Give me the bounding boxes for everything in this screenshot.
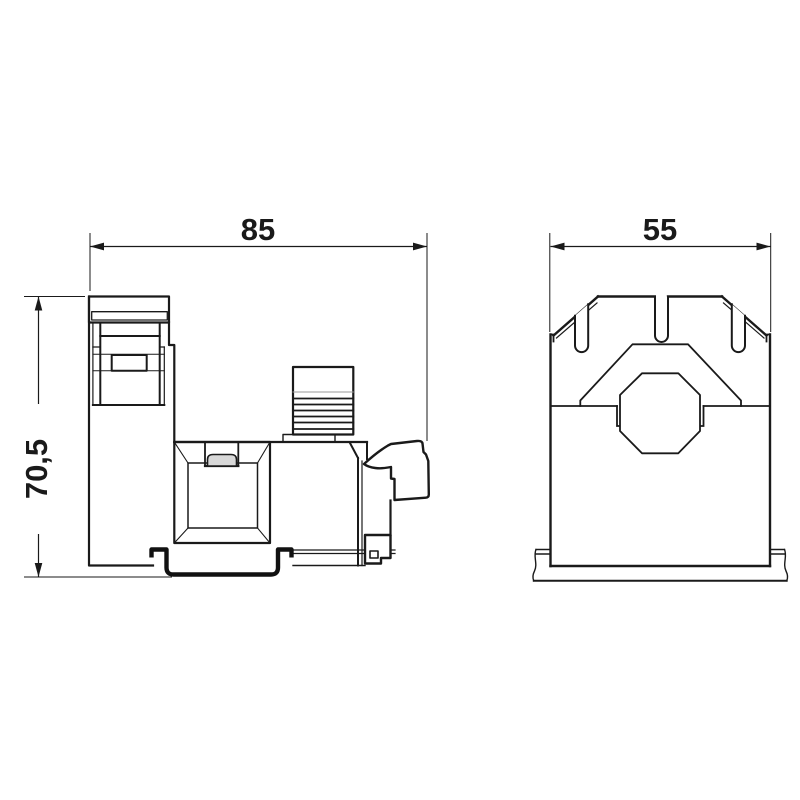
technical-drawing-canvas: 85 70,5 55 xyxy=(0,0,800,800)
arrowhead-right-icon xyxy=(413,243,427,251)
busbar-funnel xyxy=(174,442,270,543)
rail-break-right xyxy=(785,550,788,581)
test-disconnect-slot xyxy=(112,355,147,371)
arrowhead-right-icon xyxy=(757,243,771,251)
dimension-side-height: 70,5 xyxy=(19,297,172,578)
slot-left xyxy=(575,304,588,352)
dimension-label-70-5: 70,5 xyxy=(19,439,54,499)
ribbed-connector xyxy=(293,367,353,435)
dimension-label-55: 55 xyxy=(643,212,677,247)
terminal-cover-cap xyxy=(89,297,169,323)
conductor-window-octagon xyxy=(620,373,700,453)
release-latch xyxy=(364,441,429,500)
front-view xyxy=(533,297,788,581)
connector-ledge xyxy=(283,435,335,443)
dimension-side-width: 85 xyxy=(90,212,427,441)
locking-tab xyxy=(208,455,237,467)
mounting-foot xyxy=(365,501,391,564)
din-rail-profile xyxy=(152,550,292,575)
side-view xyxy=(89,297,429,575)
rail-break-left xyxy=(533,550,536,581)
arrowhead-down-icon xyxy=(35,563,43,577)
arrowhead-left-icon xyxy=(90,243,104,251)
dimension-label-85: 85 xyxy=(241,212,275,247)
drawing-page: 85 70,5 55 xyxy=(0,0,800,800)
arrowhead-left-icon xyxy=(551,243,565,251)
terminal-block xyxy=(93,323,174,443)
arrowhead-up-icon xyxy=(35,297,43,311)
slot-right xyxy=(732,304,745,352)
slot-center xyxy=(655,297,668,343)
